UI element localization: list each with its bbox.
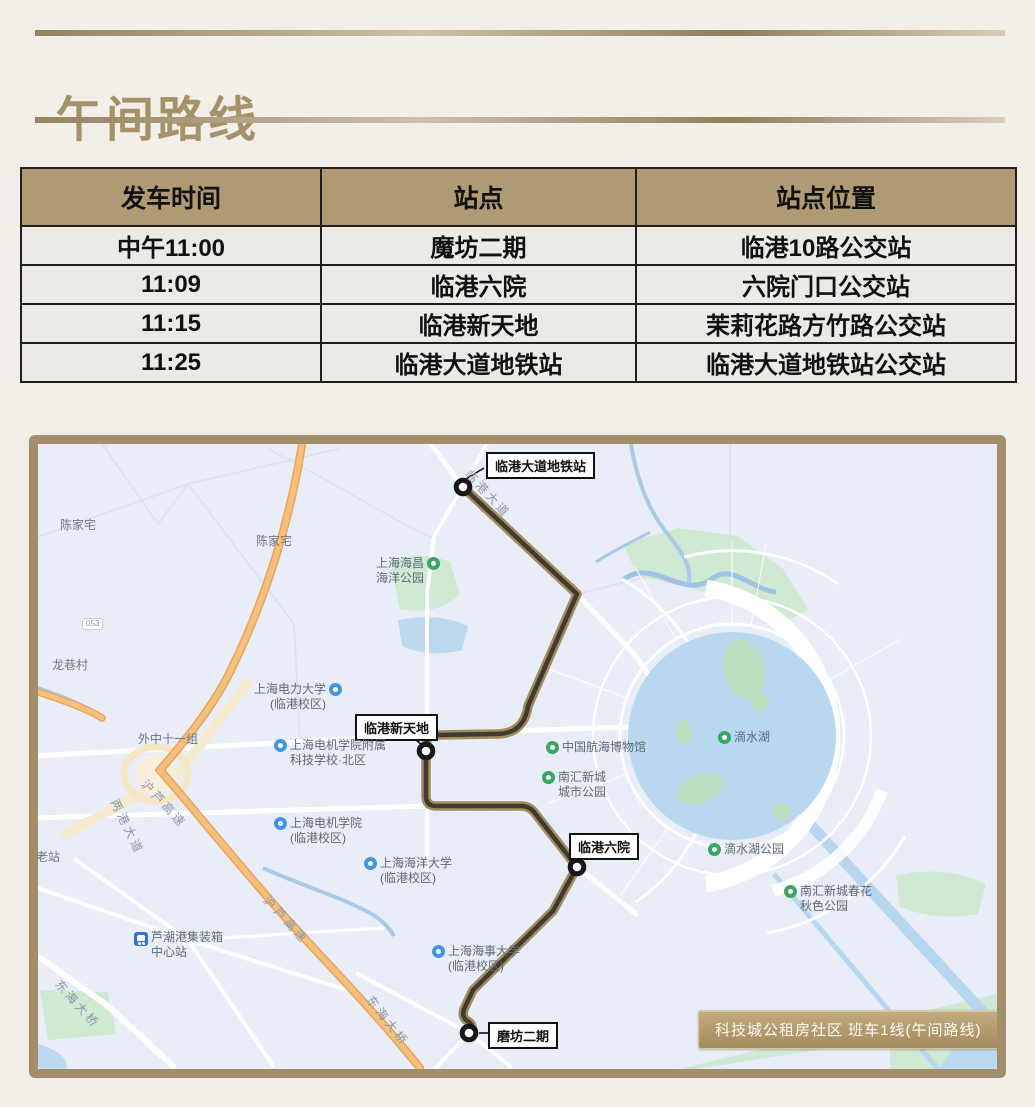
poi-old-station-partial: 老站	[38, 850, 60, 865]
station-label-xintiandi: 临港新天地	[355, 714, 438, 741]
cell-location: 临港大道地铁站公交站	[636, 343, 1016, 382]
poi-dianji-affiliated-school: 上海电机学院附属科技学校·北区	[274, 738, 386, 768]
station-label-metro: 临港大道地铁站	[486, 452, 595, 479]
poi-text: 上海海昌海洋公园	[376, 556, 424, 586]
table-row: 中午11:00 魔坊二期 临港10路公交站	[21, 226, 1016, 265]
poi-text: 上海电机学院(临港校区)	[290, 816, 362, 846]
marker-mofang-phase2	[462, 1026, 476, 1040]
schedule-table: 发车时间 站点 站点位置 中午11:00 魔坊二期 临港10路公交站 11:09…	[20, 167, 1017, 383]
cell-location: 六院门口公交站	[636, 265, 1016, 304]
cell-location: 茉莉花路方竹路公交站	[636, 304, 1016, 343]
park-pin-icon	[542, 771, 555, 784]
poi-ocean-park: 上海海昌海洋公园	[376, 556, 440, 586]
cell-location: 临港10路公交站	[636, 226, 1016, 265]
station-label-mofang: 磨坊二期	[488, 1022, 558, 1049]
marker-lingang-xintiandi	[419, 744, 433, 758]
poi-dianji-univ: 上海电机学院(临港校区)	[274, 816, 362, 846]
cell-time: 中午11:00	[21, 226, 321, 265]
table-row: 11:09 临港六院 六院门口公交站	[21, 265, 1016, 304]
poi-dishui-lake: 滴水湖	[718, 730, 770, 745]
poi-text: 龙巷村	[52, 658, 88, 673]
rail-station-icon	[134, 932, 148, 946]
cell-time: 11:15	[21, 304, 321, 343]
poi-chenjiazhai-2: 陈家宅	[256, 534, 292, 549]
museum-pin-icon	[546, 741, 559, 754]
poi-text: 上海电机学院附属科技学校·北区	[290, 738, 386, 768]
school-pin-icon	[364, 857, 377, 870]
road-shield-053: 053	[82, 618, 103, 630]
map-artwork	[38, 444, 997, 1069]
poi-longxiang-village: 龙巷村	[52, 658, 88, 673]
poi-maritime-museum: 中国航海博物馆	[546, 740, 646, 755]
school-pin-icon	[274, 817, 287, 830]
park-lake	[398, 617, 468, 653]
lake-pin-icon	[718, 731, 731, 744]
school-pin-icon	[432, 945, 445, 958]
poi-text: 上海电力大学(临港校区)	[254, 682, 326, 712]
poi-text: 上海海事大学(临港校区)	[448, 944, 520, 974]
poi-dishui-lake-park: 滴水湖公园	[708, 842, 784, 857]
header-departure-time: 发车时间	[21, 168, 321, 226]
poi-waizhong: 外中十一组	[138, 732, 198, 747]
school-pin-icon	[329, 683, 342, 696]
poi-text: 陈家宅	[60, 518, 96, 533]
station-label-hospital: 临港六院	[569, 833, 639, 860]
poi-text: 外中十一组	[138, 732, 198, 747]
poi-text: 南汇新城春花秋色公园	[800, 884, 872, 914]
poi-maritime-univ: 上海海事大学(临港校区)	[432, 944, 520, 974]
page-title: 午间路线	[55, 80, 259, 150]
school-pin-icon	[274, 739, 287, 752]
cell-station: 临港大道地铁站	[321, 343, 636, 382]
route-map: 临港大道地铁站 临港新天地 临港六院 磨坊二期 陈家宅 陈家宅 上海海昌海洋公园…	[29, 435, 1006, 1078]
table-row: 11:25 临港大道地铁站 临港大道地铁站公交站	[21, 343, 1016, 382]
midday-route-notice: { "title": "午间路线", "table": { "headers":…	[0, 0, 1035, 1107]
cell-station: 临港新天地	[321, 304, 636, 343]
park-pin-icon	[427, 557, 440, 570]
poi-text: 老站	[38, 850, 60, 865]
poi-text: 中国航海博物馆	[562, 740, 646, 755]
cell-station: 魔坊二期	[321, 226, 636, 265]
poi-electric-power-univ: 上海电力大学(临港校区)	[254, 682, 342, 712]
top-divider	[35, 30, 1005, 36]
header-station: 站点	[321, 168, 636, 226]
cell-time: 11:09	[21, 265, 321, 304]
poi-city-park: 南汇新城城市公园	[542, 770, 606, 800]
table-header-row: 发车时间 站点 站点位置	[21, 168, 1016, 226]
cell-station: 临港六院	[321, 265, 636, 304]
poi-text: 芦潮港集装箱中心站	[151, 930, 223, 960]
header-station-location: 站点位置	[636, 168, 1016, 226]
poi-text: 滴水湖公园	[724, 842, 784, 857]
route-name-badge: 科技城公租房社区 班车1线(午间路线)	[698, 1010, 997, 1049]
map-canvas: 临港大道地铁站 临港新天地 临港六院 磨坊二期 陈家宅 陈家宅 上海海昌海洋公园…	[38, 444, 997, 1069]
park-pin-icon	[708, 843, 721, 856]
poi-chunhua-park: 南汇新城春花秋色公园	[784, 884, 872, 914]
park-pin-icon	[784, 885, 797, 898]
poi-text: 陈家宅	[256, 534, 292, 549]
marker-lingang-sixth-hospital	[570, 860, 584, 874]
poi-ocean-univ: 上海海洋大学(临港校区)	[364, 856, 452, 886]
title-underline	[35, 117, 1005, 123]
table-row: 11:15 临港新天地 茉莉花路方竹路公交站	[21, 304, 1016, 343]
poi-container-terminal: 芦潮港集装箱中心站	[134, 930, 223, 960]
poi-text: 南汇新城城市公园	[558, 770, 606, 800]
poi-chenjiazhai-1: 陈家宅	[60, 518, 96, 533]
cell-time: 11:25	[21, 343, 321, 382]
poi-text: 滴水湖	[734, 730, 770, 745]
poi-text: 上海海洋大学(临港校区)	[380, 856, 452, 886]
